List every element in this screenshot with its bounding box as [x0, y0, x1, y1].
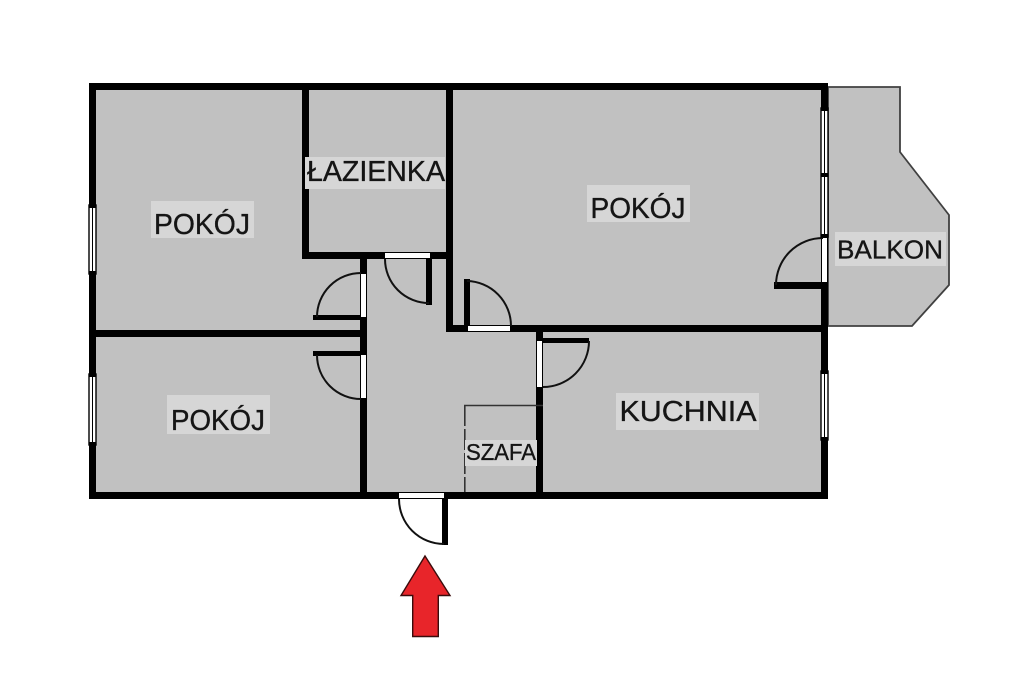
svg-text:BALKON: BALKON	[837, 235, 943, 265]
svg-text:POKÓJ: POKÓJ	[154, 208, 250, 241]
svg-text:POKÓJ: POKÓJ	[591, 192, 686, 225]
svg-text:KUCHNIA: KUCHNIA	[620, 396, 758, 428]
svg-text:SZAFA: SZAFA	[466, 439, 537, 465]
svg-text:POKÓJ: POKÓJ	[171, 404, 265, 437]
svg-text:ŁAZIENKA: ŁAZIENKA	[307, 156, 446, 188]
